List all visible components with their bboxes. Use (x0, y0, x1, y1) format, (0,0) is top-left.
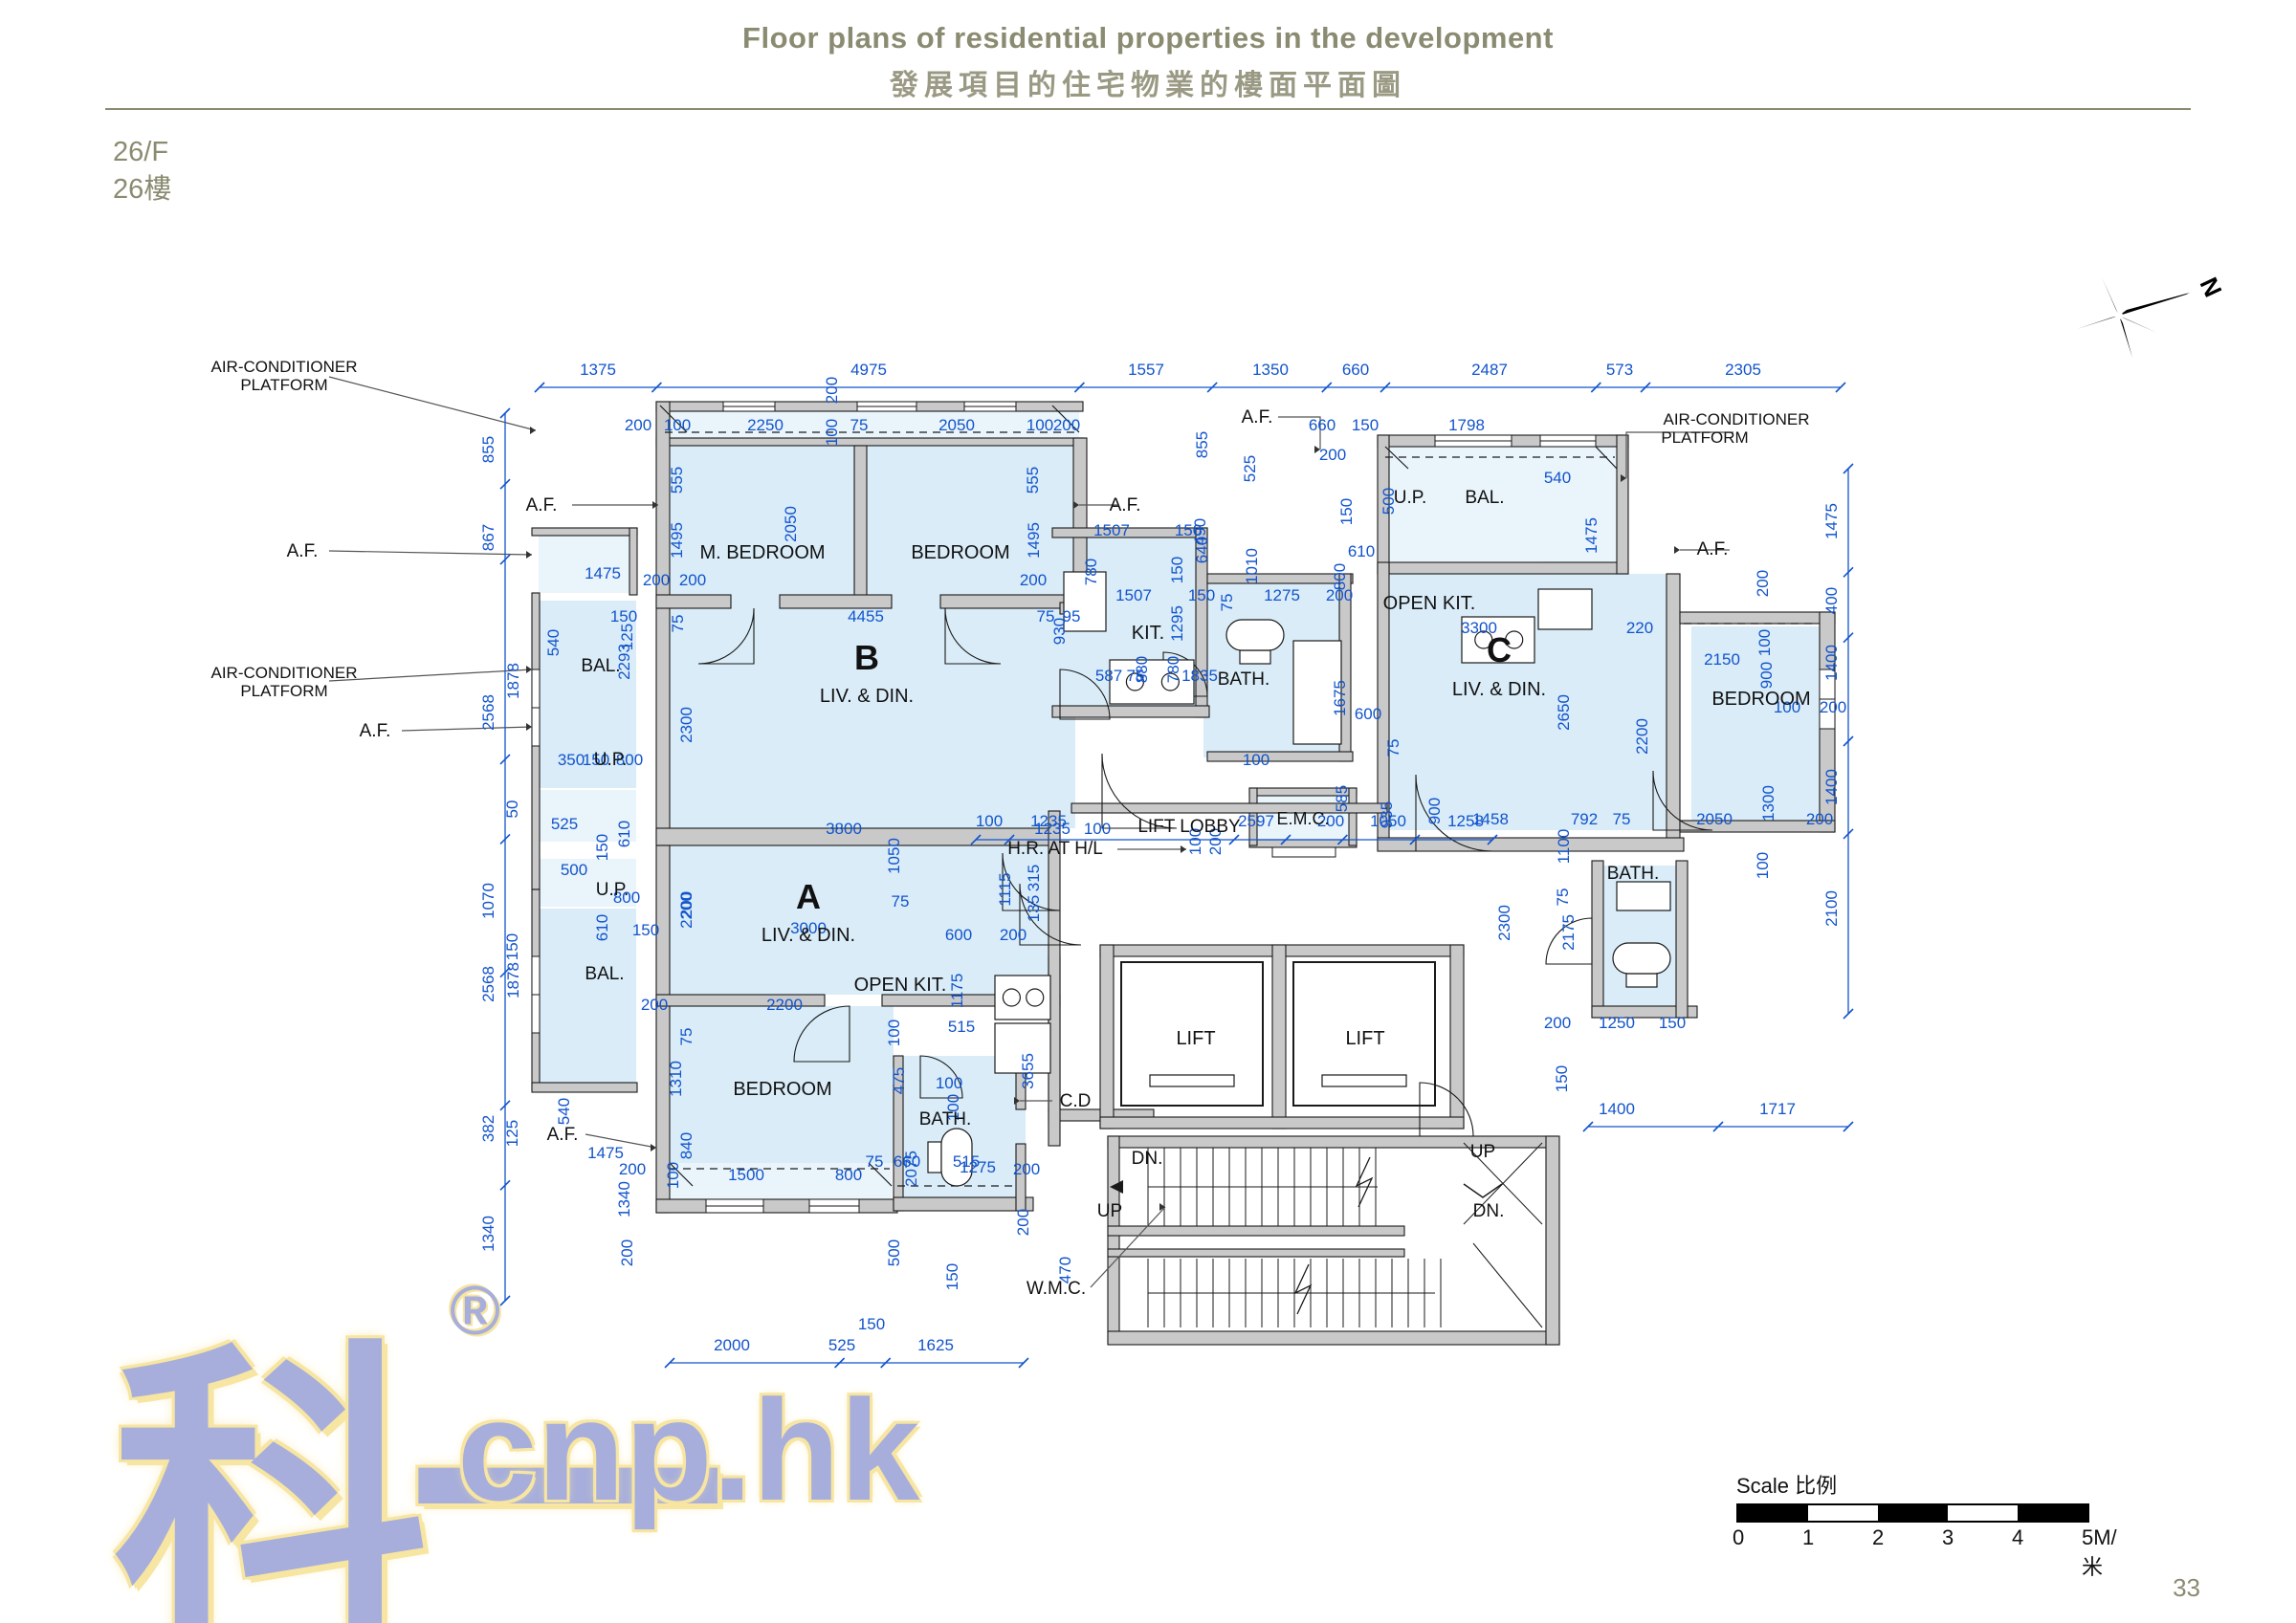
dimension-label: 660 (1342, 361, 1369, 379)
floor-plan-page: Floor plans of residential properties in… (0, 0, 2296, 1623)
room-label: LIFT (1176, 1028, 1215, 1049)
dimension-label: 2050 (1696, 810, 1733, 828)
dimension-label: 1458 (1472, 810, 1509, 828)
dimension-label: 2200 (766, 996, 803, 1014)
dimension-label: 3800 (826, 820, 862, 838)
scale-bar-segments (1736, 1503, 2089, 1523)
dimension-label: 100 (823, 419, 841, 446)
scale-bar: Scale 比例 012345M/米 (1736, 1469, 2148, 1548)
dimension-label: 610 (1348, 542, 1375, 560)
dimension-label: 792 (1571, 810, 1598, 828)
dimension-label: 1340 (479, 1216, 497, 1252)
dimension-label: 382 (479, 1115, 497, 1142)
page-number: 33 (2173, 1573, 2200, 1603)
dimension-label: 3655 (1019, 1053, 1037, 1089)
dimension-label: 75 (850, 416, 869, 434)
room-label: BEDROOM (911, 542, 1009, 563)
dimension-label: 1300 (1759, 785, 1777, 822)
dimension-label: 2200 (1633, 718, 1651, 755)
dimension-label: 200 (1053, 416, 1080, 434)
dimension-label: 1495 (1025, 522, 1043, 559)
dimension-label: 1507 (1115, 586, 1152, 604)
dimension-label: 1100 (1555, 829, 1573, 865)
dimension-label: 2075 (902, 1151, 920, 1187)
room-label: A (796, 877, 821, 916)
dimension-label: 75 (892, 892, 910, 910)
dimension-label: 2250 (747, 416, 784, 434)
dimension-label: 587 (1095, 667, 1122, 685)
room-label: BATH. (919, 1109, 972, 1130)
annotation-label: DN. (1473, 1201, 1505, 1221)
dimension-label: 573 (1606, 361, 1633, 379)
dimension-label: 2487 (1471, 361, 1508, 379)
annotation-label: A.F. (1110, 495, 1141, 515)
dimension-label: 100 (1755, 629, 1774, 656)
dimension-label: 1235 (1030, 812, 1067, 830)
dimension-label: 75 (1554, 888, 1572, 907)
dimension-label: 75 (1218, 594, 1236, 612)
annotation-label: PLATFORM (240, 682, 327, 700)
dimension-label: 100 (1754, 852, 1772, 879)
dimension-label: 1070 (479, 883, 497, 919)
scale-tick: 0 (1733, 1525, 1744, 1550)
dimension-label: 100 (1084, 820, 1111, 838)
dimension-label: 840 (677, 1132, 695, 1159)
room-label: U.P. (596, 880, 629, 900)
north-label: N (2195, 273, 2228, 301)
dimension-label: 540 (555, 1098, 573, 1125)
dimension-label: 1495 (668, 522, 686, 559)
dimension-label: 150 (1168, 557, 1186, 583)
dimension-label: 1475 (585, 564, 621, 582)
floor-plan-drawing: 1375497515571350660248757323052001002250… (0, 0, 2296, 1623)
dimension-label: 2597 (1238, 812, 1274, 830)
dimension-label: 1350 (1252, 361, 1289, 379)
dimension-label: 1557 (1128, 361, 1164, 379)
dimension-label: 585 (1333, 785, 1351, 812)
dimension-label: 1275 (960, 1158, 996, 1176)
dimension-label: 555 (1024, 467, 1042, 493)
dimension-label: 515 (948, 1018, 975, 1036)
dimension-label: 150 (943, 1263, 961, 1290)
dimension-label: 2568 (479, 966, 497, 1002)
dimension-label: 200 (679, 571, 706, 589)
annotation-label: PLATFORM (240, 376, 327, 394)
dimension-label: 200 (823, 377, 841, 404)
dimension-label: 1340 (615, 1181, 633, 1217)
dimension-label: 220 (1626, 619, 1653, 637)
dimension-label: 150 (503, 933, 521, 960)
room-label: BEDROOM (733, 1079, 831, 1100)
dimension-label: 1115 (996, 872, 1014, 906)
dimension-label: 1400 (1599, 1100, 1635, 1118)
dimension-label: 200 (1319, 446, 1346, 464)
annotation-label: H.R. AT H/L (1007, 839, 1103, 859)
annotation-label: C.D (1060, 1091, 1092, 1111)
room-label: M. BEDROOM (699, 542, 825, 563)
dimension-label: 475 (890, 1067, 908, 1094)
dimension-label: 75 (1613, 810, 1631, 828)
dimension-label: 200 (625, 416, 651, 434)
dimension-label: 2100 (1822, 890, 1841, 927)
dimension-label: 2050 (938, 416, 975, 434)
dimension-label: 525 (551, 815, 578, 833)
dimension-label: 1878 (504, 663, 522, 699)
dimension-label: 150 (1352, 416, 1379, 434)
dimension-label: 2305 (1725, 361, 1761, 379)
room-label: B (854, 638, 879, 677)
annotation-label: PLATFORM (1661, 428, 1748, 447)
scale-tick: 1 (1802, 1525, 1814, 1550)
dimension-label: 2568 (479, 694, 497, 731)
dimension-label: 930 (1050, 618, 1069, 645)
dimension-label: 100 (885, 1020, 903, 1046)
dimension-label: 1475 (1582, 517, 1601, 554)
dimension-label: 540 (544, 629, 563, 656)
dimension-label: 4455 (848, 607, 884, 625)
room-label: BAL. (581, 656, 620, 676)
dimension-label: 610 (615, 821, 633, 847)
room-label: E.M.C. (1276, 809, 1329, 828)
room-label: OPEN KIT. (1383, 593, 1476, 614)
dimension-label: 200 (1754, 570, 1772, 597)
dimension-label: 780 (1164, 656, 1182, 683)
room-label: LIFT (1345, 1028, 1384, 1049)
dimension-label: 200 (619, 1160, 646, 1178)
dimension-label: 200 (1820, 698, 1846, 716)
dimension-label: 2300 (1495, 905, 1513, 941)
annotation-label: A.F. (360, 721, 391, 741)
dimension-label: 400 (1822, 587, 1841, 614)
dimension-label: 1310 (667, 1061, 685, 1097)
dimension-label: 135 (1025, 895, 1043, 922)
annotation-label: UP (1470, 1142, 1495, 1162)
dimension-label: 100 (1243, 751, 1269, 769)
dimension-label: 780 (1082, 559, 1100, 585)
annotation-label: A.F. (547, 1125, 579, 1145)
dimension-label: 2650 (1555, 694, 1573, 731)
dimension-label: 640 (1193, 537, 1211, 563)
dimension-label: 200 (1014, 1209, 1032, 1236)
dimension-label: 100 (976, 812, 1003, 830)
dimension-label: 150 (593, 834, 611, 861)
dimension-label: 200 (618, 1239, 636, 1266)
scale-tick: 2 (1872, 1525, 1884, 1550)
dimension-label: 150 (858, 1315, 885, 1333)
room-label: C (1487, 630, 1512, 669)
scale-tick: 4 (2012, 1525, 2023, 1550)
dimension-label: 50 (503, 801, 521, 819)
dimension-label: 150 (1188, 586, 1215, 604)
room-label: U.P. (594, 750, 628, 770)
annotation-label: W.M.C. (1027, 1279, 1086, 1299)
dimension-label: 2000 (714, 1336, 750, 1354)
dimension-label: 200 (643, 571, 670, 589)
dimension-label: 900 (1425, 798, 1444, 824)
dimension-label: 1717 (1759, 1100, 1796, 1118)
dimension-label: 1625 (917, 1336, 954, 1354)
room-label: BEDROOM (1711, 689, 1810, 710)
annotation-label: AIR-CONDITIONER (211, 664, 358, 682)
dimension-label: 200 (1000, 926, 1027, 944)
dimension-label: 1500 (728, 1166, 764, 1184)
dimension-label: 2150 (1704, 650, 1740, 669)
room-label: LIFT LOBBY (1137, 817, 1241, 837)
dimension-label: 1835 (1181, 667, 1218, 685)
annotation-label: AIR-CONDITIONER (211, 358, 358, 376)
dimension-label: 900 (1757, 662, 1776, 689)
dimension-label: 150 (610, 607, 637, 625)
dimension-label: 800 (835, 1166, 862, 1184)
dimension-label: 75 (1384, 739, 1402, 757)
room-label: OPEN KIT. (854, 975, 947, 996)
dimension-label: 555 (668, 467, 686, 493)
room-label: LIV. & DIN. (820, 686, 914, 707)
dimension-label: 1507 (1093, 521, 1130, 539)
dimension-label: 2175 (1559, 914, 1578, 951)
dimension-label: 800 (1331, 563, 1349, 590)
room-label: BAL. (585, 964, 624, 984)
dimension-label: 100 (664, 416, 691, 434)
dimension-label: 4975 (850, 361, 887, 379)
dimension-label: 1400 (1822, 645, 1841, 681)
dimension-label: 867 (479, 524, 497, 551)
dimension-label: 100 (1027, 416, 1053, 434)
dimension-label: 200 (1806, 810, 1833, 828)
dimension-label: 200 (1020, 571, 1047, 589)
dimension-label: 1798 (1448, 416, 1485, 434)
room-label: KIT. (1132, 623, 1164, 644)
room-label: LIV. & DIN. (1452, 679, 1546, 700)
dimension-label: 1400 (1822, 769, 1841, 805)
dimension-label: 855 (479, 436, 497, 463)
dimension-label: 75 (866, 1152, 884, 1171)
scale-bar-label: Scale 比例 (1736, 1469, 2148, 1500)
dimension-label: 200 (641, 996, 668, 1014)
dimension-label: 540 (1544, 469, 1571, 487)
room-label: BAL. (1465, 488, 1504, 508)
annotation-label: A.F. (526, 495, 558, 515)
dimension-label: 1250 (1599, 1014, 1635, 1032)
dimension-label: 1475 (1822, 503, 1841, 539)
dimension-label: 350 (558, 751, 585, 769)
dimension-label: 1675 (1331, 680, 1349, 716)
dimension-label: 75 (669, 615, 687, 633)
dimension-label: 315 (1025, 865, 1043, 891)
dimension-label: 1050 (885, 838, 903, 874)
dimension-label: 525 (828, 1336, 855, 1354)
dimension-label: 150 (1553, 1065, 1571, 1092)
dimension-label: 1878 (504, 962, 522, 998)
dimension-label: 880 (1133, 656, 1151, 683)
dimension-label: 100 (664, 1162, 682, 1189)
dimension-label: 935 (1378, 801, 1396, 828)
dimension-label: 200 (1013, 1160, 1040, 1178)
dimension-label: 2200 (677, 892, 695, 929)
dimension-label: 75 (677, 1028, 695, 1046)
dimension-label: 500 (885, 1239, 903, 1266)
annotation-label: AIR-CONDITIONER (1664, 410, 1810, 428)
room-label: U.P. (1394, 488, 1427, 508)
dimension-label: 600 (945, 926, 972, 944)
dimension-label: 600 (1355, 705, 1381, 723)
room-label: BATH. (1218, 669, 1270, 690)
dimension-label: 150 (1659, 1014, 1686, 1032)
dimension-label: 2300 (677, 707, 695, 743)
dimension-label: 1175 (948, 974, 966, 1009)
dimension-label: 500 (561, 861, 587, 879)
annotation-label: A.F. (1242, 407, 1273, 428)
dimension-label: 1010 (1243, 548, 1261, 584)
annotation-label: A.F. (287, 541, 319, 561)
annotation-label: DN. (1132, 1149, 1163, 1169)
dimension-label: 150 (632, 921, 659, 939)
room-label: LIV. & DIN. (762, 925, 855, 946)
north-arrow: N (2077, 273, 2228, 358)
dimension-label: 1275 (1264, 586, 1300, 604)
annotation-label: A.F. (1697, 539, 1729, 559)
dimension-label: 100 (936, 1074, 962, 1092)
dimension-label: 525 (1241, 455, 1259, 482)
scale-tick: 3 (1942, 1525, 1954, 1550)
dimension-label: 1375 (580, 361, 616, 379)
room-label: BATH. (1607, 864, 1660, 884)
annotation-label: UP (1097, 1201, 1122, 1221)
dimension-label: 610 (593, 914, 611, 941)
scale-tick: 5M/米 (2082, 1525, 2117, 1581)
dimension-label: 1295 (1168, 605, 1186, 642)
dimension-label: 150 (1337, 498, 1356, 525)
dimension-label: 660 (1309, 416, 1336, 434)
dimension-label: 2050 (782, 506, 800, 542)
scale-bar-ticks: 012345M/米 (1736, 1525, 2089, 1548)
dimension-label: 125 (503, 1120, 521, 1147)
dimension-label: 200 (1544, 1014, 1571, 1032)
dimension-label: 855 (1193, 431, 1211, 458)
